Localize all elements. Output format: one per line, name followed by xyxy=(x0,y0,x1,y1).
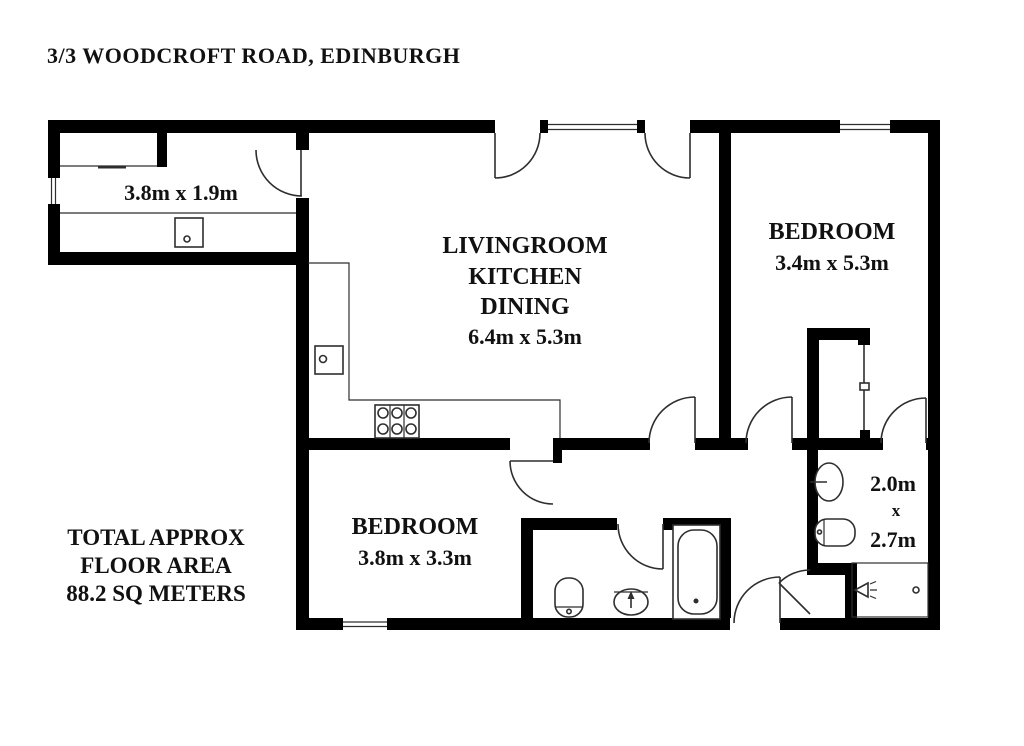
floor-area-note-2: FLOOR AREA xyxy=(80,553,232,578)
bathtub-drain xyxy=(694,599,699,604)
hob xyxy=(375,405,419,438)
ensuite-dims-depth: 2.7m xyxy=(870,527,916,552)
hob-burner xyxy=(378,424,388,434)
bedroom-left-dims: 3.8m x 3.3m xyxy=(358,545,472,570)
livingroom-dims: 6.4m x 5.3m xyxy=(468,324,582,349)
floor-area-note-1: TOTAL APPROX xyxy=(67,525,245,550)
floorplan-page: 3/3 WOODCROFT ROAD, EDINBURGH xyxy=(0,0,1024,746)
ensuite-dims-width: 2.0m xyxy=(870,471,916,496)
hob-burner xyxy=(406,424,416,434)
hob-burner xyxy=(392,424,402,434)
wardrobe-door-handle xyxy=(860,383,869,390)
floorplan: 3/3 WOODCROFT ROAD, EDINBURGH xyxy=(0,0,1024,746)
toilet xyxy=(555,578,583,617)
bedroom-left-label: BEDROOM xyxy=(352,514,479,540)
floor-area-note-3: 88.2 SQ METERS xyxy=(66,581,246,606)
ensuite-toilet xyxy=(815,519,855,546)
bathtub xyxy=(673,525,720,619)
livingroom-label-2: KITCHEN xyxy=(468,264,582,290)
bathroom-basin xyxy=(614,589,648,615)
hob-burner xyxy=(378,408,388,418)
hob-burner xyxy=(392,408,402,418)
utility-sink xyxy=(175,218,203,247)
kitchen-sink-drain xyxy=(320,356,327,363)
utility-room-dims: 3.8m x 1.9m xyxy=(124,180,238,205)
shower-drain xyxy=(913,587,919,593)
bedroom-right-label: BEDROOM xyxy=(769,219,896,245)
ensuite-toilet-flush xyxy=(818,530,822,534)
bedroom-right-dims: 3.4m x 5.3m xyxy=(775,250,889,275)
livingroom-label-3: DINING xyxy=(480,294,570,320)
ensuite-dims-separator: x xyxy=(892,501,901,520)
toilet-flush xyxy=(567,609,571,613)
livingroom-label-1: LIVINGROOM xyxy=(442,233,607,259)
page-title: 3/3 WOODCROFT ROAD, EDINBURGH xyxy=(47,43,460,68)
hob-burner xyxy=(406,408,416,418)
background xyxy=(0,0,1024,746)
utility-sink-drain xyxy=(184,236,190,242)
